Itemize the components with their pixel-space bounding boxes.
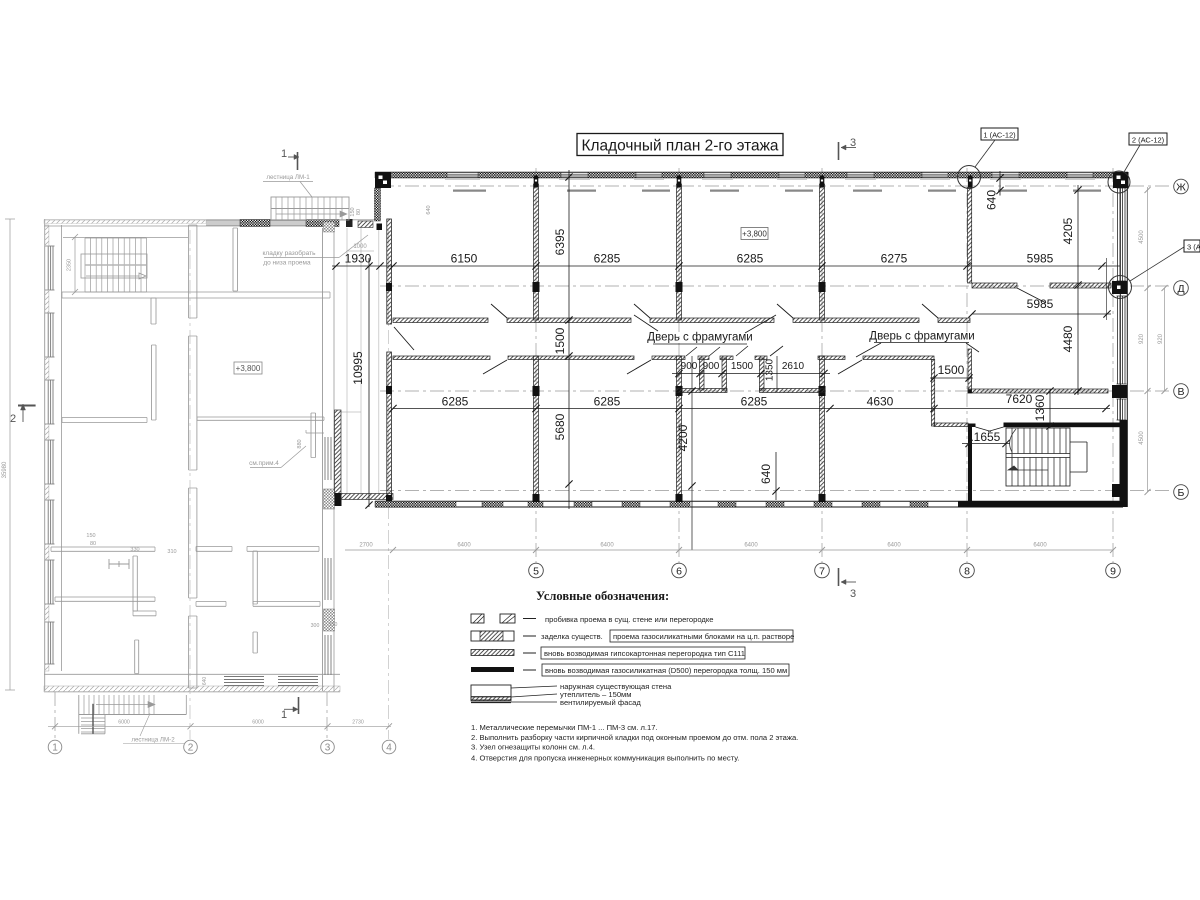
svg-text:640: 640	[985, 190, 999, 210]
svg-text:3: 3	[325, 743, 331, 754]
svg-text:2730: 2730	[352, 719, 364, 725]
svg-text:Ж: Ж	[1176, 182, 1186, 194]
svg-text:35980: 35980	[2, 461, 8, 478]
svg-text:150: 150	[86, 533, 95, 539]
svg-text:1: 1	[281, 709, 287, 721]
svg-text:5985: 5985	[1027, 252, 1054, 266]
svg-text:80: 80	[356, 209, 362, 215]
svg-text:вновь возводимая газосиликатна: вновь возводимая газосиликатная (D500) п…	[545, 666, 787, 675]
svg-text:2: 2	[188, 743, 194, 754]
svg-text:1930: 1930	[345, 252, 372, 266]
svg-text:6285: 6285	[737, 252, 764, 266]
svg-text:900: 900	[703, 361, 720, 372]
svg-text:2: 2	[10, 413, 16, 425]
svg-text:5680: 5680	[553, 413, 567, 440]
svg-text:лестница ЛМ-2: лестница ЛМ-2	[131, 737, 175, 744]
svg-text:6400: 6400	[744, 543, 758, 549]
svg-text:1: 1	[52, 743, 58, 754]
svg-text:310: 310	[167, 549, 176, 555]
svg-text:3 (АС-12: 3 (АС-12	[1187, 243, 1200, 252]
svg-text:4200: 4200	[676, 424, 690, 451]
svg-text:1: 1	[281, 148, 287, 160]
svg-text:1. Металлические перемычки ПМ: 1. Металлические перемычки ПМ-1 ... ПМ-3…	[471, 723, 658, 732]
svg-text:Б: Б	[1178, 487, 1185, 499]
svg-text:Дверь с фрамугами: Дверь с фрамугами	[869, 331, 974, 343]
svg-text:4480: 4480	[1061, 325, 1075, 352]
svg-text:330: 330	[329, 622, 338, 628]
svg-text:2350: 2350	[67, 259, 73, 271]
svg-text:2700: 2700	[359, 543, 373, 549]
svg-text:80: 80	[90, 541, 96, 547]
svg-text:кладку разобрать: кладку разобрать	[263, 249, 317, 257]
svg-text:2 (АС-12): 2 (АС-12)	[1132, 136, 1165, 145]
svg-text:вентилируемый фасад: вентилируемый фасад	[560, 698, 641, 707]
svg-text:3: 3	[850, 588, 856, 600]
svg-text:7: 7	[819, 566, 825, 578]
svg-text:7620: 7620	[1006, 392, 1033, 406]
svg-text:пробивка проема в сущ. стене: пробивка проема в сущ. стене или перегор…	[545, 615, 713, 624]
svg-text:1500: 1500	[731, 361, 754, 372]
svg-text:3. Узел огнезащиты колонн см.: 3. Узел огнезащиты колонн см. л.4.	[471, 743, 595, 752]
svg-text:до низа проема: до низа проема	[263, 260, 311, 267]
svg-text:880: 880	[297, 439, 303, 448]
svg-text:6400: 6400	[887, 543, 901, 549]
svg-text:лестница ЛМ-1: лестница ЛМ-1	[266, 174, 310, 181]
svg-text:заделка существ.: заделка существ.	[541, 632, 603, 641]
svg-text:проема газосиликатными блоками: проема газосиликатными блоками на ц.п. р…	[613, 632, 794, 641]
svg-text:300: 300	[311, 623, 320, 629]
svg-text:6285: 6285	[594, 252, 621, 266]
svg-text:5: 5	[533, 566, 539, 578]
svg-text:6285: 6285	[741, 395, 768, 409]
svg-text:Дверь с фрамугами: Дверь с фрамугами	[647, 332, 752, 344]
svg-text:4500: 4500	[1139, 431, 1145, 445]
svg-text:Д: Д	[1177, 283, 1184, 295]
svg-text:см.прим.4: см.прим.4	[249, 460, 279, 467]
svg-text:5985: 5985	[1027, 297, 1054, 311]
svg-text:Условные обозначения:: Условные обозначения:	[536, 589, 669, 603]
svg-text:1350: 1350	[765, 358, 776, 381]
svg-text:640: 640	[759, 464, 773, 484]
svg-text:6: 6	[676, 566, 682, 578]
svg-text:2610: 2610	[782, 361, 805, 372]
svg-text:+3,800: +3,800	[742, 230, 767, 239]
svg-text:4500: 4500	[1139, 230, 1145, 244]
svg-text:1500: 1500	[553, 327, 567, 354]
svg-text:4: 4	[386, 743, 392, 754]
svg-text:Кладочный план 2-го этажа: Кладочный план 2-го этажа	[582, 138, 779, 155]
svg-text:3: 3	[850, 137, 856, 149]
svg-text:6400: 6400	[457, 543, 471, 549]
svg-text:2. Выполнить разборку части ки: 2. Выполнить разборку части кирпичной кл…	[471, 733, 798, 742]
svg-text:900: 900	[681, 361, 698, 372]
svg-text:1 (АС-12): 1 (АС-12)	[983, 131, 1016, 140]
svg-text:вновь возводимая гипсокартонна: вновь возводимая гипсокартонная перегоро…	[544, 649, 745, 658]
svg-text:4630: 4630	[867, 395, 894, 409]
svg-text:10995: 10995	[351, 351, 365, 385]
svg-text:1500: 1500	[938, 363, 965, 377]
svg-text:4. Отверстия для пропуска инже: 4. Отверстия для пропуска инженерных ком…	[471, 754, 739, 763]
svg-text:330: 330	[130, 547, 139, 553]
svg-text:В: В	[1177, 386, 1184, 398]
svg-text:6400: 6400	[600, 543, 614, 549]
svg-text:920: 920	[1158, 333, 1164, 344]
svg-text:6275: 6275	[881, 252, 908, 266]
svg-text:640: 640	[426, 205, 432, 214]
svg-text:6150: 6150	[451, 252, 478, 266]
svg-text:+3,800: +3,800	[236, 364, 261, 373]
svg-text:6395: 6395	[553, 228, 567, 255]
svg-text:1655: 1655	[974, 430, 1001, 444]
svg-text:8: 8	[964, 566, 970, 578]
svg-text:1360: 1360	[1033, 394, 1047, 421]
svg-text:9: 9	[1110, 566, 1116, 578]
svg-text:4205: 4205	[1061, 217, 1075, 244]
svg-text:6400: 6400	[1033, 543, 1047, 549]
svg-text:6000: 6000	[252, 719, 264, 725]
svg-text:920: 920	[1139, 333, 1145, 344]
svg-text:6285: 6285	[442, 395, 469, 409]
svg-text:6285: 6285	[594, 395, 621, 409]
svg-text:640: 640	[202, 677, 208, 686]
svg-text:6000: 6000	[118, 719, 130, 725]
